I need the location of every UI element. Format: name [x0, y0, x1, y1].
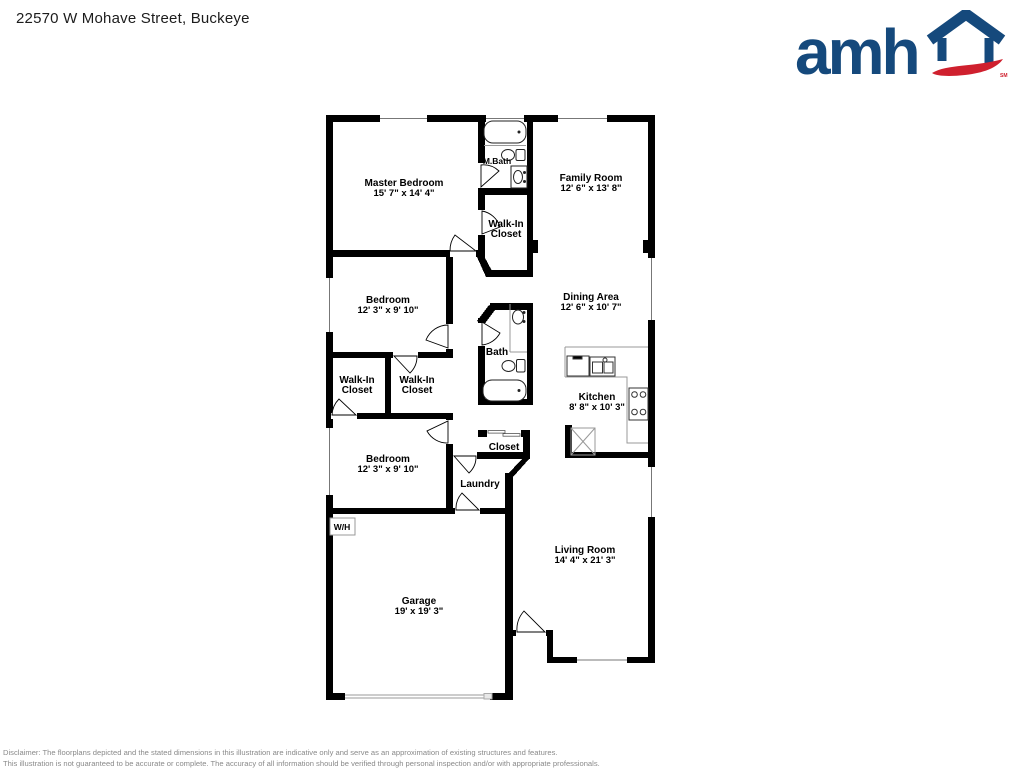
- room-label-closet: Closet: [489, 442, 520, 453]
- room-label-water-heater: W/H: [334, 522, 351, 532]
- room-label-master-closet: Walk-In Closet: [488, 219, 523, 240]
- svg-text:12' 3" x 9' 10": 12' 3" x 9' 10": [357, 305, 418, 316]
- room-label-dining-area: Dining Area 12' 6" x 10' 7": [560, 292, 621, 313]
- svg-text:Closet: Closet: [342, 385, 373, 396]
- room-label-laundry: Laundry: [460, 479, 500, 490]
- room-label-mbath: M.Bath: [483, 156, 511, 166]
- room-label-closet-left: Walk-In Closet: [339, 375, 374, 396]
- pantry-icon: [571, 428, 595, 455]
- floorplan: Master Bedroom 15' 7" x 14' 4" M.Bath Fa…: [0, 0, 1024, 768]
- front-entry-door: [517, 611, 545, 632]
- disclaimer-line-1: Disclaimer: The floorplans depicted and …: [3, 747, 763, 758]
- svg-text:Bath: Bath: [486, 347, 508, 358]
- bath-door: [482, 322, 500, 345]
- room-label-family-room: Family Room 12' 6" x 13' 8": [560, 173, 623, 194]
- closet-left-door: [332, 399, 356, 415]
- sink-icon: [513, 310, 524, 324]
- svg-text:Closet: Closet: [491, 229, 522, 240]
- closet-right-door: [394, 356, 417, 373]
- room-label-bath: Bath: [486, 347, 508, 358]
- room-label-closet-right: Walk-In Closet: [399, 375, 434, 396]
- svg-text:12' 6" x 13' 8": 12' 6" x 13' 8": [560, 183, 621, 194]
- disclaimer-line-2: This illustration is not guaranteed to b…: [3, 758, 763, 769]
- room-label-bedroom-2: Bedroom 12' 3" x 9' 10": [357, 454, 418, 475]
- svg-text:12' 6" x 10' 7": 12' 6" x 10' 7": [560, 302, 621, 313]
- svg-text:M.Bath: M.Bath: [483, 156, 511, 166]
- svg-text:15' 7" x 14' 4": 15' 7" x 14' 4": [373, 188, 434, 199]
- svg-text:8' 8" x 10' 3": 8' 8" x 10' 3": [569, 402, 625, 413]
- svg-text:Closet: Closet: [489, 442, 520, 453]
- disclaimer: Disclaimer: The floorplans depicted and …: [3, 747, 763, 769]
- laundry-garage-door: [456, 493, 479, 510]
- bedroom2-door: [427, 421, 448, 443]
- svg-text:W/H: W/H: [334, 522, 351, 532]
- master-bedroom-door: [450, 235, 476, 251]
- svg-text:12' 3" x 9' 10": 12' 3" x 9' 10": [357, 464, 418, 475]
- room-label-bedroom-1: Bedroom 12' 3" x 9' 10": [357, 295, 418, 316]
- svg-text:14' 4" x 21' 3": 14' 4" x 21' 3": [554, 555, 615, 566]
- bedroom1-door: [426, 325, 448, 348]
- room-label-master-bedroom: Master Bedroom 15' 7" x 14' 4": [365, 178, 444, 199]
- svg-text:Laundry: Laundry: [460, 479, 500, 490]
- master-bath-door: [481, 165, 499, 187]
- toilet-icon: [502, 361, 515, 372]
- room-label-living-room: Living Room 14' 4" x 21' 3": [554, 545, 615, 566]
- laundry-hall-door: [454, 456, 476, 473]
- svg-text:19' x 19' 3": 19' x 19' 3": [395, 606, 444, 617]
- room-label-garage: Garage 19' x 19' 3": [395, 596, 444, 617]
- svg-text:Closet: Closet: [402, 385, 433, 396]
- room-label-kitchen: Kitchen 8' 8" x 10' 3": [569, 392, 625, 413]
